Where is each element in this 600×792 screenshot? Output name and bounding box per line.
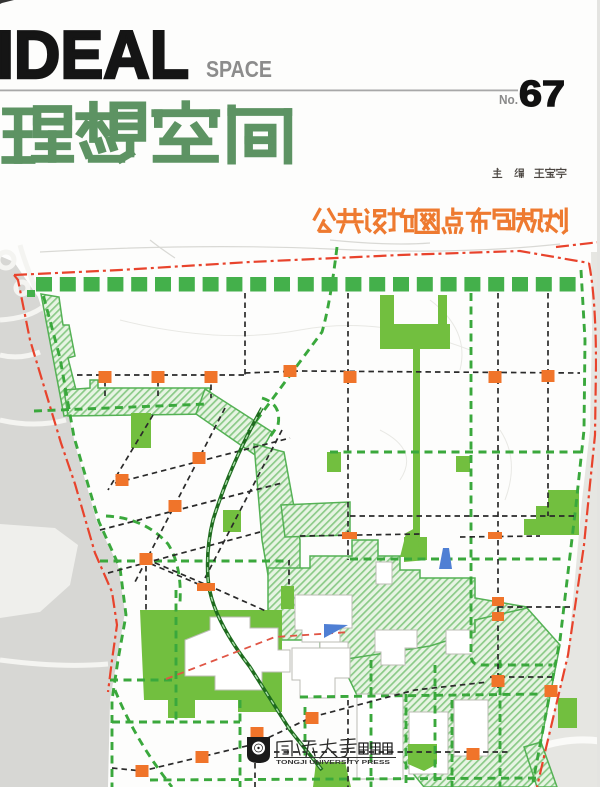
svg-text:67: 67: [519, 73, 565, 114]
svg-text:No.: No.: [499, 93, 518, 107]
svg-text:IDEAL: IDEAL: [0, 17, 189, 93]
svg-text:SPACE: SPACE: [206, 56, 272, 82]
svg-text:TONGJI UNIVERSITY PRESS: TONGJI UNIVERSITY PRESS: [276, 760, 390, 766]
